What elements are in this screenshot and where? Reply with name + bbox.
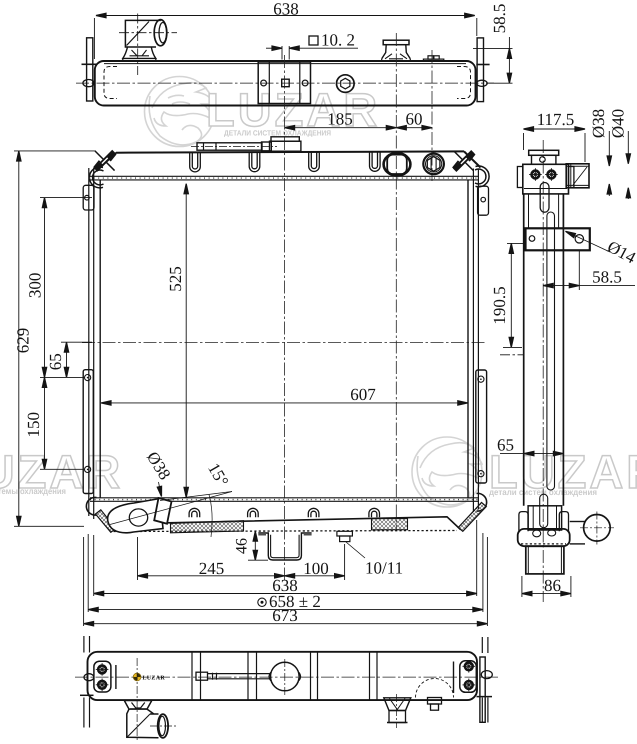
svg-text:629: 629 [14, 328, 33, 354]
svg-text:LUZAR: LUZAR [143, 675, 166, 681]
svg-text:245: 245 [199, 559, 225, 578]
svg-text:185: 185 [327, 110, 353, 129]
svg-text:Ø38: Ø38 [589, 109, 608, 138]
svg-text:Ø40: Ø40 [609, 109, 628, 138]
svg-text:58.5: 58.5 [592, 267, 622, 286]
svg-text:65: 65 [46, 353, 65, 370]
svg-text:300: 300 [26, 273, 45, 299]
svg-text:190.5: 190.5 [490, 286, 509, 324]
svg-text:65: 65 [497, 435, 514, 454]
svg-text:10/11: 10/11 [365, 559, 403, 578]
svg-text:58.5: 58.5 [490, 4, 509, 34]
svg-text:150: 150 [24, 412, 43, 438]
svg-text:117.5: 117.5 [537, 110, 575, 129]
svg-text:детали системы охлаждения: детали системы охлаждения [0, 486, 66, 496]
svg-text:100: 100 [303, 559, 329, 578]
svg-text:525: 525 [166, 266, 185, 292]
svg-text:60: 60 [406, 110, 423, 129]
svg-text:10. 2: 10. 2 [321, 31, 355, 50]
svg-text:607: 607 [350, 385, 376, 404]
svg-text:673: 673 [272, 606, 298, 625]
svg-text:46: 46 [234, 538, 251, 554]
svg-text:86: 86 [544, 576, 561, 595]
